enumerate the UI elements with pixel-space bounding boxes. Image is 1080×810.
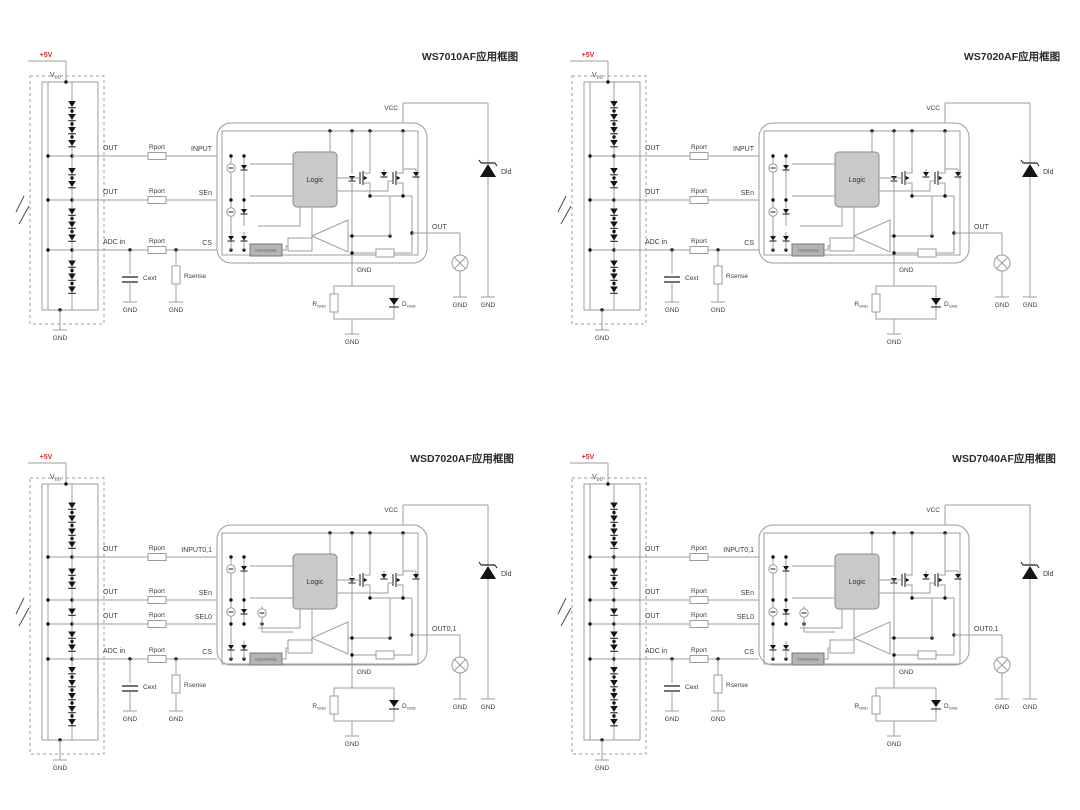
mosfet-drain xyxy=(396,169,403,173)
dgnd-diode-icon xyxy=(389,700,399,707)
junction-dot xyxy=(242,622,245,625)
zener-icon xyxy=(381,172,387,177)
led-diode-icon xyxy=(610,645,618,651)
internal-resistor xyxy=(918,651,936,659)
pin-label: SEn xyxy=(741,590,754,597)
comparator-step xyxy=(830,640,854,653)
junction-dot xyxy=(771,622,774,625)
junction-dot xyxy=(612,577,615,580)
junction-dot xyxy=(612,217,615,220)
current-sense-label: Current sense xyxy=(255,658,276,662)
junction-dot xyxy=(892,251,895,254)
gnd-label: GND xyxy=(711,307,726,314)
pin-label: CS xyxy=(744,649,754,656)
led-diode-icon xyxy=(68,114,76,120)
gnd-label: GND xyxy=(887,741,902,748)
junction-dot xyxy=(612,122,615,125)
pin-label: SEn xyxy=(199,590,212,597)
rport-label: Rport xyxy=(691,647,707,654)
led-diode-icon xyxy=(68,101,76,107)
power-5v-label: +5V xyxy=(40,52,53,59)
diagram-wsd7040af: WSD7040AF应用框图+5VVDDGNDOUTRportINPUT0,1OU… xyxy=(558,452,1056,772)
junction-dot xyxy=(70,282,73,285)
led-diode-icon xyxy=(68,582,76,588)
pin-label: SEL0 xyxy=(195,614,212,621)
pin-label: INPUT0,1 xyxy=(181,547,212,554)
diagram-title: WSD7040AF应用框图 xyxy=(952,452,1056,465)
junction-dot xyxy=(588,622,591,625)
cext-label: Cext xyxy=(143,684,157,691)
junction-dot xyxy=(612,511,615,514)
mosfet-source xyxy=(938,183,945,187)
junction-dot xyxy=(910,194,913,197)
tap-label: OUT xyxy=(103,589,119,596)
vcc-label: VCC xyxy=(384,105,398,112)
gnd-label: GND xyxy=(169,307,184,314)
pin-label: INPUT xyxy=(733,146,755,153)
rport-resistor xyxy=(690,597,708,604)
rgnd-label: RGND xyxy=(854,703,868,711)
rport-resistor xyxy=(690,247,708,254)
led-diode-icon xyxy=(610,114,618,120)
junction-dot xyxy=(612,701,615,704)
led-diode-icon xyxy=(68,274,76,280)
junction-dot xyxy=(229,154,232,157)
led-diode-icon xyxy=(610,719,618,725)
zener-icon xyxy=(241,609,247,614)
rport-resistor xyxy=(690,554,708,561)
mosfet-arrow xyxy=(364,578,368,582)
junction-dot xyxy=(606,80,609,83)
rsense-label: Rsense xyxy=(184,273,206,280)
power-5v-label: +5V xyxy=(40,454,53,461)
rport-resistor xyxy=(690,197,708,204)
tap-label: ADC in xyxy=(645,648,667,655)
rport-label: Rport xyxy=(691,144,707,151)
led-diode-icon xyxy=(610,609,618,615)
rsense-resistor xyxy=(714,675,722,693)
junction-dot xyxy=(606,482,609,485)
zener-icon xyxy=(783,566,789,571)
led-diode-icon xyxy=(68,168,76,174)
tap-label: OUT xyxy=(645,546,661,553)
led-diode-icon xyxy=(68,140,76,146)
rport-resistor xyxy=(148,597,166,604)
led-diode-icon xyxy=(610,101,618,107)
rport-label: Rport xyxy=(149,144,165,151)
mosfet-arrow xyxy=(397,176,401,180)
break-mark xyxy=(561,206,571,224)
mosfet-drain xyxy=(938,571,945,575)
junction-dot xyxy=(70,701,73,704)
led-diode-icon xyxy=(610,222,618,228)
junction-dot xyxy=(612,176,615,179)
junction-dot xyxy=(242,598,245,601)
junction-dot xyxy=(771,555,774,558)
led-diode-icon xyxy=(68,667,76,673)
gnd-label: GND xyxy=(453,302,468,309)
break-mark xyxy=(561,608,571,626)
mosfet-arrow xyxy=(906,578,910,582)
zener-icon xyxy=(783,165,789,170)
gnd-label: GND xyxy=(453,704,468,711)
dgnd-label: DGND xyxy=(402,703,416,711)
comparator-step xyxy=(288,238,312,251)
gnd-label: GND xyxy=(53,335,68,342)
rport-label: Rport xyxy=(691,588,707,595)
led-diode-icon xyxy=(68,287,76,293)
led-diode-icon xyxy=(610,503,618,509)
pin-label: SEn xyxy=(741,190,754,197)
zener-icon xyxy=(241,165,247,170)
junction-dot xyxy=(64,80,67,83)
led-diode-icon xyxy=(68,181,76,187)
zener-icon xyxy=(241,209,247,214)
junction-dot xyxy=(70,135,73,138)
tap-label: ADC in xyxy=(645,239,667,246)
mosfet-source xyxy=(396,183,403,187)
junction-dot xyxy=(784,198,787,201)
mosfet-drain xyxy=(363,571,370,575)
mosfet-arrow xyxy=(364,176,368,180)
junction-dot xyxy=(588,657,591,660)
zener-icon xyxy=(241,645,247,650)
gnd-network-box xyxy=(334,688,394,721)
out-pin-label: OUT xyxy=(974,224,990,231)
rport-resistor xyxy=(148,197,166,204)
dld-tick xyxy=(495,163,497,166)
tap-label: OUT xyxy=(103,613,119,620)
pin-label: CS xyxy=(202,649,212,656)
junction-dot xyxy=(46,598,49,601)
dld-label: Dld xyxy=(1043,571,1054,578)
led-diode-icon xyxy=(610,274,618,280)
gnd-label: GND xyxy=(53,765,68,772)
tap-label: ADC in xyxy=(103,648,125,655)
out-pin-label: OUT0,1 xyxy=(974,626,999,633)
mosfet-source xyxy=(905,183,912,187)
junction-dot xyxy=(70,217,73,220)
rgnd-resistor xyxy=(330,696,338,714)
dld-label: Dld xyxy=(501,169,512,176)
led-diode-icon xyxy=(68,503,76,509)
gnd-label: GND xyxy=(665,716,680,723)
comparator-step xyxy=(830,238,854,251)
tap-label: OUT xyxy=(645,145,661,152)
pin-label: SEn xyxy=(199,190,212,197)
junction-dot xyxy=(229,598,232,601)
led-diode-icon xyxy=(68,127,76,133)
rport-resistor xyxy=(690,656,708,663)
mosfet-source xyxy=(363,585,370,589)
rport-label: Rport xyxy=(691,612,707,619)
junction-dot xyxy=(892,653,895,656)
led-diode-icon xyxy=(610,569,618,575)
gnd-label: GND xyxy=(1023,704,1038,711)
zener-icon xyxy=(770,236,776,241)
gnd-label: GND xyxy=(481,704,496,711)
led-diode-icon xyxy=(610,693,618,699)
junction-dot xyxy=(350,251,353,254)
led-diode-icon xyxy=(610,667,618,673)
cs-wire xyxy=(824,648,830,659)
gnd-label: GND xyxy=(1023,302,1038,309)
tap-label: ADC in xyxy=(103,239,125,246)
junction-dot xyxy=(612,640,615,643)
junction-dot xyxy=(401,194,404,197)
cext-label: Cext xyxy=(685,684,699,691)
junction-dot xyxy=(70,122,73,125)
rgnd-resistor xyxy=(872,294,880,312)
rport-label: Rport xyxy=(691,545,707,552)
ic-gnd-label: GND xyxy=(357,669,372,676)
ic-gnd-label: GND xyxy=(899,669,914,676)
mosfet-drain xyxy=(396,571,403,575)
tap-label: OUT xyxy=(645,189,661,196)
gnd-label: GND xyxy=(995,302,1010,309)
dld-tick xyxy=(1037,163,1039,166)
rsense-label: Rsense xyxy=(726,273,748,280)
junction-dot xyxy=(784,622,787,625)
zener-icon xyxy=(923,574,929,579)
led-diode-icon xyxy=(68,209,76,215)
ic-gnd-label: GND xyxy=(357,267,372,274)
junction-dot xyxy=(892,636,895,639)
junction-dot xyxy=(46,154,49,157)
junction-dot xyxy=(368,194,371,197)
dld-zener-icon xyxy=(480,566,496,579)
gnd-label: GND xyxy=(995,704,1010,711)
junction-dot xyxy=(612,282,615,285)
ic-gnd-label: GND xyxy=(899,267,914,274)
junction-dot xyxy=(229,198,232,201)
gnd-network-box xyxy=(876,688,936,721)
rgnd-label: RGND xyxy=(312,703,326,711)
mosfet-source xyxy=(363,183,370,187)
pin-label: INPUT xyxy=(191,146,213,153)
schematics-canvas: WS7010AF应用框图+5VVDDGNDOUTRportINPUTOUTRpo… xyxy=(0,0,1080,810)
junction-dot xyxy=(70,230,73,233)
led-diode-icon xyxy=(610,529,618,535)
junction-dot xyxy=(588,555,591,558)
pin-label: CS xyxy=(202,240,212,247)
comparator-icon xyxy=(854,220,890,252)
dgnd-diode-icon xyxy=(931,700,941,707)
zener-icon xyxy=(241,566,247,571)
mosfet-source xyxy=(396,585,403,589)
rgnd-label: RGND xyxy=(854,301,868,309)
rgnd-resistor xyxy=(330,294,338,312)
comparator-icon xyxy=(312,220,348,252)
break-mark xyxy=(19,206,29,224)
junction-dot xyxy=(612,230,615,233)
led-string-dashed-box xyxy=(572,478,646,754)
rport-label: Rport xyxy=(691,238,707,245)
zener-icon xyxy=(923,172,929,177)
rport-label: Rport xyxy=(149,647,165,654)
junction-dot xyxy=(70,511,73,514)
rport-resistor xyxy=(690,621,708,628)
mosfet-source xyxy=(938,585,945,589)
led-diode-icon xyxy=(68,680,76,686)
diagram-ws7010af: WS7010AF应用框图+5VVDDGNDOUTRportINPUTOUTRpo… xyxy=(16,50,518,346)
led-diode-icon xyxy=(68,516,76,522)
gnd-label: GND xyxy=(665,307,680,314)
zener-icon xyxy=(783,209,789,214)
rgnd-label: RGND xyxy=(312,301,326,309)
zener-icon xyxy=(228,645,234,650)
junction-dot xyxy=(612,524,615,527)
break-mark xyxy=(19,608,29,626)
led-diode-icon xyxy=(610,680,618,686)
junction-dot xyxy=(350,234,353,237)
gnd-label: GND xyxy=(123,716,138,723)
junction-dot xyxy=(401,596,404,599)
led-diode-icon xyxy=(68,222,76,228)
vcc-label: VCC xyxy=(926,105,940,112)
mosfet-drain xyxy=(905,571,912,575)
diagram-wsd7020af: WSD7020AF应用框图+5VVDDGNDOUTRportINPUT0,1OU… xyxy=(16,452,514,772)
led-diode-icon xyxy=(68,645,76,651)
logic-label: Logic xyxy=(849,177,866,184)
junction-dot xyxy=(64,482,67,485)
zener-icon xyxy=(228,236,234,241)
logic-label: Logic xyxy=(849,579,866,586)
zener-icon xyxy=(770,645,776,650)
dld-zener-icon xyxy=(1022,164,1038,177)
junction-dot xyxy=(892,234,895,237)
junction-dot xyxy=(46,198,49,201)
junction-dot xyxy=(612,537,615,540)
rport-resistor xyxy=(690,153,708,160)
zener-icon xyxy=(241,236,247,241)
junction-dot xyxy=(70,176,73,179)
pin-label: INPUT0,1 xyxy=(723,547,754,554)
junction-dot xyxy=(46,248,49,251)
junction-dot xyxy=(771,198,774,201)
junction-dot xyxy=(612,675,615,678)
dgnd-label: DGND xyxy=(944,301,958,309)
rport-label: Rport xyxy=(149,188,165,195)
power-5v-label: +5V xyxy=(582,454,595,461)
internal-resistor xyxy=(918,249,936,257)
junction-dot xyxy=(70,675,73,678)
led-diode-icon xyxy=(610,582,618,588)
junction-dot xyxy=(70,109,73,112)
rport-label: Rport xyxy=(149,238,165,245)
mosfet-arrow xyxy=(906,176,910,180)
led-diode-icon xyxy=(610,140,618,146)
rsense-resistor xyxy=(714,266,722,284)
cs-wire xyxy=(824,246,830,250)
led-diode-icon xyxy=(68,609,76,615)
diagram-title: WS7010AF应用框图 xyxy=(422,50,518,63)
led-diode-icon xyxy=(68,529,76,535)
dgnd-label: DGND xyxy=(944,703,958,711)
mosfet-arrow xyxy=(939,176,943,180)
rport-label: Rport xyxy=(149,612,165,619)
logic-label: Logic xyxy=(307,177,324,184)
junction-dot xyxy=(242,154,245,157)
rsense-label: Rsense xyxy=(726,682,748,689)
led-diode-icon xyxy=(610,168,618,174)
zener-icon xyxy=(783,609,789,614)
junction-dot xyxy=(784,154,787,157)
break-mark xyxy=(16,598,24,614)
tap-label: OUT xyxy=(103,546,119,553)
junction-dot xyxy=(46,657,49,660)
led-string-dashed-box xyxy=(30,478,104,754)
junction-dot xyxy=(612,109,615,112)
break-mark xyxy=(558,196,566,212)
break-mark xyxy=(16,196,24,212)
rport-resistor xyxy=(148,656,166,663)
gnd-label: GND xyxy=(123,307,138,314)
dld-label: Dld xyxy=(501,571,512,578)
page: WS7010AF应用框图+5VVDDGNDOUTRportINPUTOUTRpo… xyxy=(0,0,1080,810)
pin-label: SEL0 xyxy=(737,614,754,621)
junction-dot xyxy=(368,596,371,599)
gnd-network-box xyxy=(334,286,394,319)
led-diode-icon xyxy=(610,261,618,267)
mosfet-arrow xyxy=(397,578,401,582)
internal-resistor xyxy=(376,651,394,659)
led-diode-icon xyxy=(610,632,618,638)
led-diode-icon xyxy=(610,209,618,215)
comparator-icon xyxy=(854,622,890,654)
led-diode-icon xyxy=(68,542,76,548)
junction-dot xyxy=(612,688,615,691)
gnd-label: GND xyxy=(481,302,496,309)
dld-tick xyxy=(495,565,497,568)
led-diode-icon xyxy=(68,569,76,575)
gnd-network-box xyxy=(876,286,936,319)
vcc-label: VCC xyxy=(384,507,398,514)
pin-label: CS xyxy=(744,240,754,247)
junction-dot xyxy=(229,622,232,625)
comparator-icon xyxy=(312,622,348,654)
gnd-label: GND xyxy=(345,339,360,346)
led-diode-icon xyxy=(610,127,618,133)
led-diode-icon xyxy=(610,706,618,712)
junction-dot xyxy=(70,524,73,527)
led-diode-icon xyxy=(68,719,76,725)
current-sense-label: Current sense xyxy=(797,249,818,253)
tap-label: OUT xyxy=(645,589,661,596)
junction-dot xyxy=(242,555,245,558)
cs-wire xyxy=(282,246,288,250)
dgnd-label: DGND xyxy=(402,301,416,309)
junction-dot xyxy=(70,640,73,643)
zener-icon xyxy=(783,645,789,650)
junction-dot xyxy=(784,555,787,558)
junction-dot xyxy=(771,154,774,157)
mosfet-source xyxy=(905,585,912,589)
junction-dot xyxy=(612,714,615,717)
led-diode-icon xyxy=(610,542,618,548)
comparator-step xyxy=(288,640,312,653)
junction-dot xyxy=(242,198,245,201)
zener-icon xyxy=(783,236,789,241)
gnd-label: GND xyxy=(595,335,610,342)
gnd-label: GND xyxy=(711,716,726,723)
cext-label: Cext xyxy=(685,275,699,282)
cs-wire xyxy=(282,648,288,659)
dld-tick xyxy=(1021,562,1023,565)
dld-tick xyxy=(479,160,481,163)
dld-tick xyxy=(479,562,481,565)
mosfet-drain xyxy=(905,169,912,173)
